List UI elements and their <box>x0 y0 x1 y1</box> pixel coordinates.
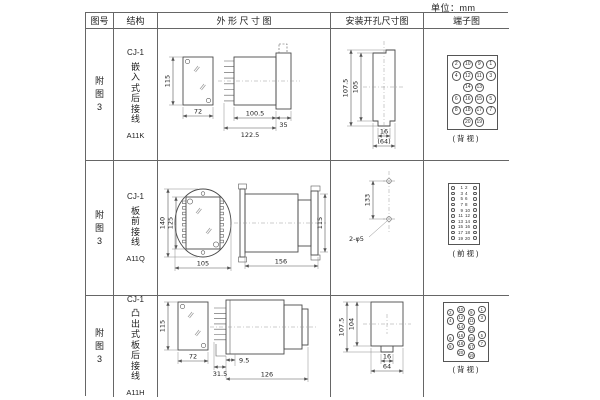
dim-inner-height: 104 <box>348 318 356 330</box>
dim-width: 105 <box>197 260 209 268</box>
header-structure: 结构 <box>114 13 158 29</box>
terminal-pair-row: 1920 <box>449 235 479 241</box>
dim-body-length: 100.5 <box>246 110 265 118</box>
row1-structure: CJ-1嵌入式后接线A11K <box>114 29 158 161</box>
terminal-pin-4: 4 <box>452 71 462 81</box>
terminal-pin-3: 3 <box>478 314 486 322</box>
terminal-caption: (背视) <box>424 133 509 144</box>
hole-note: 2-φ5 <box>349 235 364 243</box>
terminal-diagram-rear: 2109141211314136161558181772019 <box>447 55 498 130</box>
row2-figure-no: 附图3 <box>86 161 114 296</box>
dim-side-height: 115 <box>316 217 324 229</box>
row1-outline-cell: 115 72 100.5 35 122.5 <box>158 29 331 161</box>
terminal-pin-14: 14 <box>457 323 465 331</box>
dim-inner-height: 125 <box>167 217 175 229</box>
terminal-pin-11: 11 <box>468 317 476 325</box>
row1-install-cell: 107.5 105 16 (64) <box>331 29 424 161</box>
dim-width: 72 <box>194 108 202 116</box>
row1-terminal-cell: 2109141211314136161558181772019 (背视) <box>424 29 509 161</box>
terminal-pin-3: 3 <box>486 71 496 81</box>
terminal-pin-12: 12 <box>457 314 465 322</box>
terminal-caption: (前视) <box>424 248 509 259</box>
terminal-pin-9: 9 <box>475 60 485 70</box>
header-figure-no: 图号 <box>86 13 114 29</box>
terminal-pin-1: 1 <box>478 306 486 314</box>
terminal-pin-10: 10 <box>457 306 465 314</box>
dim-body-length: 126 <box>261 371 273 379</box>
dim-outer-height: 140 <box>159 217 167 229</box>
row2-outline-cell: 140 125 105 <box>158 161 331 296</box>
terminal-pin-12: 12 <box>463 71 473 81</box>
terminal-pin-7: 7 <box>478 340 486 348</box>
terminal-pin-18: 18 <box>457 340 465 348</box>
row3-structure: CJ-1凸出式板后接线A11H <box>114 296 158 397</box>
install-drawing-a11k: 107.5 105 16 (64) <box>331 29 423 160</box>
dim-slot-width: 16 <box>383 353 391 361</box>
dim-foot: 31.5 <box>213 370 227 378</box>
terminal-diagram-rear: 2109141211314136161558181772019 <box>443 302 489 362</box>
terminal-caption: (背视) <box>424 364 509 375</box>
dim-height: 115 <box>164 75 172 87</box>
terminal-pin-13: 13 <box>468 326 476 334</box>
terminal-pin-15: 15 <box>468 334 476 342</box>
dim-pin-length: 9.5 <box>239 357 249 365</box>
install-drawing-a11q: 133 2-φ5 <box>331 161 423 295</box>
dim-width: 72 <box>189 353 197 361</box>
terminal-pin-14: 14 <box>463 83 473 93</box>
header-terminal: 端子图 <box>424 13 509 29</box>
terminal-pin-2: 2 <box>447 309 455 317</box>
header-install: 安装开孔尺寸图 <box>331 13 424 29</box>
row1-figure-no: 附图3 <box>86 29 114 161</box>
dim-outer-width: 64 <box>383 363 391 371</box>
terminal-pin-17: 17 <box>468 343 476 351</box>
terminal-pin-16: 16 <box>463 94 473 104</box>
terminal-pin-20: 20 <box>463 117 473 127</box>
structure-text: CJ-1板前接线A11Q <box>114 161 157 295</box>
terminal-pin-16: 16 <box>457 331 465 339</box>
terminal-pin-7: 7 <box>486 106 496 116</box>
outline-drawing-a11h: 115 72 9.5 31.5 <box>158 296 330 396</box>
dim-slot-width: 16 <box>380 128 388 136</box>
terminal-diagram-front: 1234567891011121314151617181920 <box>448 183 480 245</box>
dim-hole-span: 133 <box>364 194 372 206</box>
terminal-pin-6: 6 <box>447 334 455 342</box>
terminal-pin-9: 9 <box>468 309 476 317</box>
dim-total-length: 122.5 <box>241 131 260 139</box>
dimension-table: 图号 结构 外 形 尺 寸 图 安装开孔尺寸图 端子图 附图3 CJ-1嵌入式后… <box>85 12 508 396</box>
terminal-pin-10: 10 <box>463 60 473 70</box>
terminal-pin-4: 4 <box>447 317 455 325</box>
figure-no-text: 附图3 <box>86 29 113 160</box>
terminal-pin-5: 5 <box>478 331 486 339</box>
dim-outer-width: (64) <box>377 138 390 146</box>
row3-figure-no: 附图3 <box>86 296 114 397</box>
dim-outer-height: 107.5 <box>338 318 346 337</box>
row2-install-cell: 133 2-φ5 <box>331 161 424 296</box>
row3-install-cell: 107.5 104 16 64 <box>331 296 424 397</box>
row2-structure: CJ-1板前接线A11Q <box>114 161 158 296</box>
outline-drawing-a11k: 115 72 100.5 35 122.5 <box>158 29 330 160</box>
dim-height: 115 <box>159 320 167 332</box>
terminal-pin-1: 1 <box>486 60 496 70</box>
terminal-pin-15: 15 <box>475 94 485 104</box>
figure-no-text: 附图3 <box>86 161 113 295</box>
dim-flange: 35 <box>279 121 287 129</box>
terminal-pin-8: 8 <box>452 106 462 116</box>
header-outline: 外 形 尺 寸 图 <box>158 13 331 29</box>
figure-no-text: 附图3 <box>86 296 113 397</box>
terminal-pin-17: 17 <box>475 106 485 116</box>
dim-outer-height: 107.5 <box>342 79 350 98</box>
dim-length: 156 <box>275 258 287 266</box>
row3-outline-cell: 115 72 9.5 31.5 <box>158 296 331 397</box>
terminal-pin-2: 2 <box>452 60 462 70</box>
terminal-pin-18: 18 <box>463 106 473 116</box>
terminal-pin-6: 6 <box>452 94 462 104</box>
terminal-pin-19: 19 <box>468 352 476 360</box>
row2-terminal-cell: 1234567891011121314151617181920 (前视) <box>424 161 509 296</box>
terminal-pin-11: 11 <box>475 71 485 81</box>
row3-terminal-cell: 2109141211314136161558181772019 (背视) <box>424 296 509 397</box>
terminal-pin-20: 20 <box>457 349 465 357</box>
terminal-pin-13: 13 <box>475 83 485 93</box>
install-drawing-a11h: 107.5 104 16 64 <box>331 296 423 396</box>
terminal-pin-19: 19 <box>475 117 485 127</box>
dim-inner-height: 105 <box>352 81 360 93</box>
outline-drawing-a11q: 140 125 105 <box>158 161 330 295</box>
structure-text: CJ-1嵌入式后接线A11K <box>114 29 157 160</box>
terminal-pin-5: 5 <box>486 94 496 104</box>
document-page: 单位：mm 图号 结构 外 形 尺 寸 图 安装开孔尺寸图 端子图 附图3 CJ… <box>0 0 600 400</box>
terminal-pin-8: 8 <box>447 343 455 351</box>
structure-text: CJ-1凸出式板后接线A11H <box>114 296 157 397</box>
